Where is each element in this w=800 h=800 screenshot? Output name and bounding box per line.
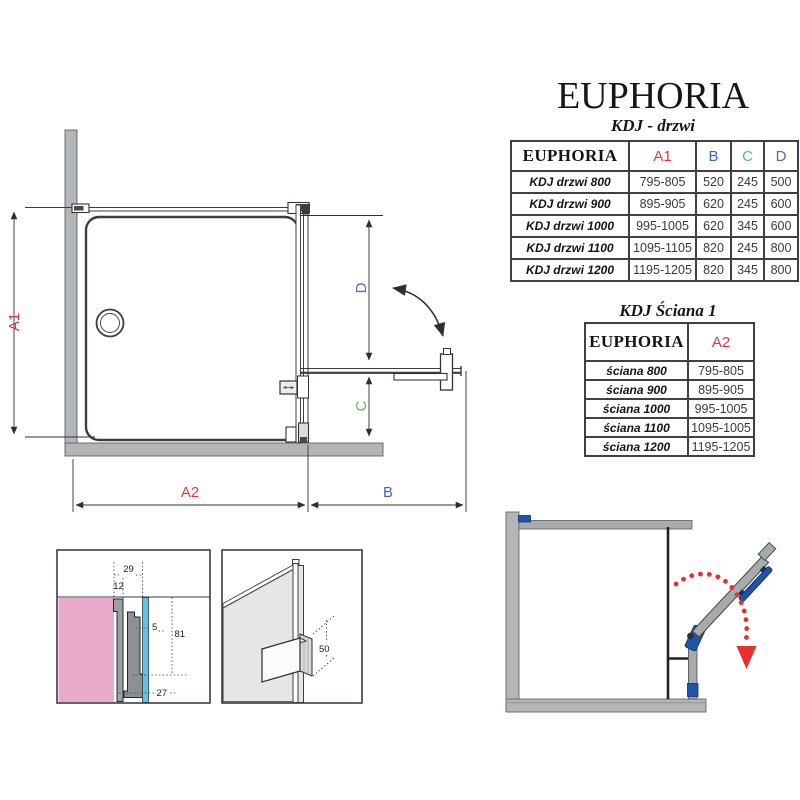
- cell-b: 820: [696, 259, 731, 281]
- detail-dim-5: 5: [152, 622, 157, 633]
- top-bar-clip: [519, 516, 531, 523]
- table-row: ściana 1200 1195-1205: [585, 437, 754, 456]
- table-row: ściana 900 895-905: [585, 380, 754, 399]
- cell-model: ściana 1200: [585, 437, 688, 456]
- schematic-top-bar: [519, 521, 692, 530]
- table-header-row: EUPHORIA A1 B C D: [511, 141, 798, 171]
- plan-view-drawing: A1 D C A2 B: [6, 130, 466, 512]
- table-row: KDJ drzwi 800 795-805 520 245 500: [511, 171, 798, 193]
- detail-dim-27: 27: [157, 688, 168, 699]
- cell-a2: 895-905: [688, 380, 754, 399]
- cell-model: KDJ drzwi 1100: [511, 237, 629, 259]
- col-header-model: EUPHORIA: [585, 323, 688, 361]
- table-row: KDJ drzwi 1200 1195-1205 820 345 800: [511, 259, 798, 281]
- cell-model: ściana 800: [585, 361, 688, 380]
- cell-d: 800: [764, 259, 798, 281]
- cell-model: KDJ drzwi 1200: [511, 259, 629, 281]
- col-header-d: D: [764, 141, 798, 171]
- wall-section-pink: [59, 598, 115, 702]
- door-handle: [441, 354, 453, 390]
- dim-label-a1: A1: [6, 313, 23, 331]
- cell-c: 245: [731, 171, 764, 193]
- page-title: EUPHORIA: [505, 76, 800, 116]
- cell-model: ściana 1100: [585, 418, 688, 437]
- table-row: KDJ drzwi 1000 995-1005 620 345 600: [511, 215, 798, 237]
- detail-dim-12: 12: [113, 581, 124, 592]
- col-header-c: C: [731, 141, 764, 171]
- dim-label-d: D: [353, 282, 370, 293]
- tilted-door: [693, 557, 769, 638]
- table-row: KDJ drzwi 900 895-905 620 245 600: [511, 193, 798, 215]
- door-frame-profile: [296, 204, 310, 443]
- cell-a1: 795-805: [629, 171, 696, 193]
- col-header-a2: A2: [688, 323, 754, 361]
- cell-c: 245: [731, 237, 764, 259]
- cell-model: KDJ drzwi 1000: [511, 215, 629, 237]
- cell-model: ściana 1000: [585, 399, 688, 418]
- cell-model: ściana 900: [585, 380, 688, 399]
- schematic-floor: [506, 699, 706, 712]
- schematic-wall-left: [506, 512, 519, 712]
- wall-bottom: [65, 443, 383, 456]
- detail-handle-drawing: 50: [222, 550, 362, 703]
- wall-table-title: KDJ Ściana 1: [578, 301, 758, 321]
- cell-a2: 1195-1205: [688, 437, 754, 456]
- table-row: ściana 800 795-805: [585, 361, 754, 380]
- side-schematic-drawing: [506, 512, 776, 712]
- dim-label-c: C: [353, 400, 370, 411]
- wall-profile-block: [72, 204, 89, 213]
- frame-strip-3d: [293, 560, 304, 703]
- cell-d: 600: [764, 193, 798, 215]
- col-header-b: B: [696, 141, 731, 171]
- detail-dim-81: 81: [175, 629, 186, 640]
- cell-c: 345: [731, 215, 764, 237]
- table-row: ściana 1100 1095-1005: [585, 418, 754, 437]
- detail-dim-29: 29: [123, 564, 134, 575]
- cell-b: 520: [696, 171, 731, 193]
- col-header-a1: A1: [629, 141, 696, 171]
- cell-c: 245: [731, 193, 764, 215]
- door-size-table: EUPHORIA A1 B C D KDJ drzwi 800 795-805 …: [510, 140, 799, 282]
- cell-d: 500: [764, 171, 798, 193]
- cell-b: 820: [696, 237, 731, 259]
- cell-d: 800: [764, 237, 798, 259]
- table-row: KDJ drzwi 1100 1095-1105 820 245 800: [511, 237, 798, 259]
- cell-c: 345: [731, 259, 764, 281]
- cell-a2: 1095-1005: [688, 418, 754, 437]
- col-header-model: EUPHORIA: [511, 141, 629, 171]
- cell-a2: 795-805: [688, 361, 754, 380]
- table-header-row: EUPHORIA A2: [585, 323, 754, 361]
- cell-b: 620: [696, 215, 731, 237]
- cell-a1: 995-1005: [629, 215, 696, 237]
- cell-a2: 995-1005: [688, 399, 754, 418]
- table-row: ściana 1000 995-1005: [585, 399, 754, 418]
- wall-size-table: EUPHORIA A2 ściana 800 795-805 ściana 90…: [584, 322, 755, 457]
- page-subtitle: KDJ - drzwi: [505, 116, 800, 136]
- spec-sheet: A1 D C A2 B: [0, 0, 800, 800]
- cell-a1: 1195-1205: [629, 259, 696, 281]
- dim-label-b: B: [383, 484, 393, 501]
- glass-section-cyan: [143, 598, 149, 703]
- cell-model: KDJ drzwi 800: [511, 171, 629, 193]
- cell-model: KDJ drzwi 900: [511, 193, 629, 215]
- cell-d: 600: [764, 215, 798, 237]
- cell-a1: 895-905: [629, 193, 696, 215]
- wall-left: [65, 130, 77, 448]
- door-panel-open: [300, 349, 461, 391]
- dim-label-a2: A2: [181, 484, 199, 501]
- door-swing-arc: [393, 288, 443, 336]
- detail-dim-50: 50: [319, 644, 330, 655]
- cell-a1: 1095-1105: [629, 237, 696, 259]
- cell-b: 620: [696, 193, 731, 215]
- post-clip: [688, 684, 699, 697]
- detail-profile-drawing: 29 12 5 81 27: [57, 550, 210, 703]
